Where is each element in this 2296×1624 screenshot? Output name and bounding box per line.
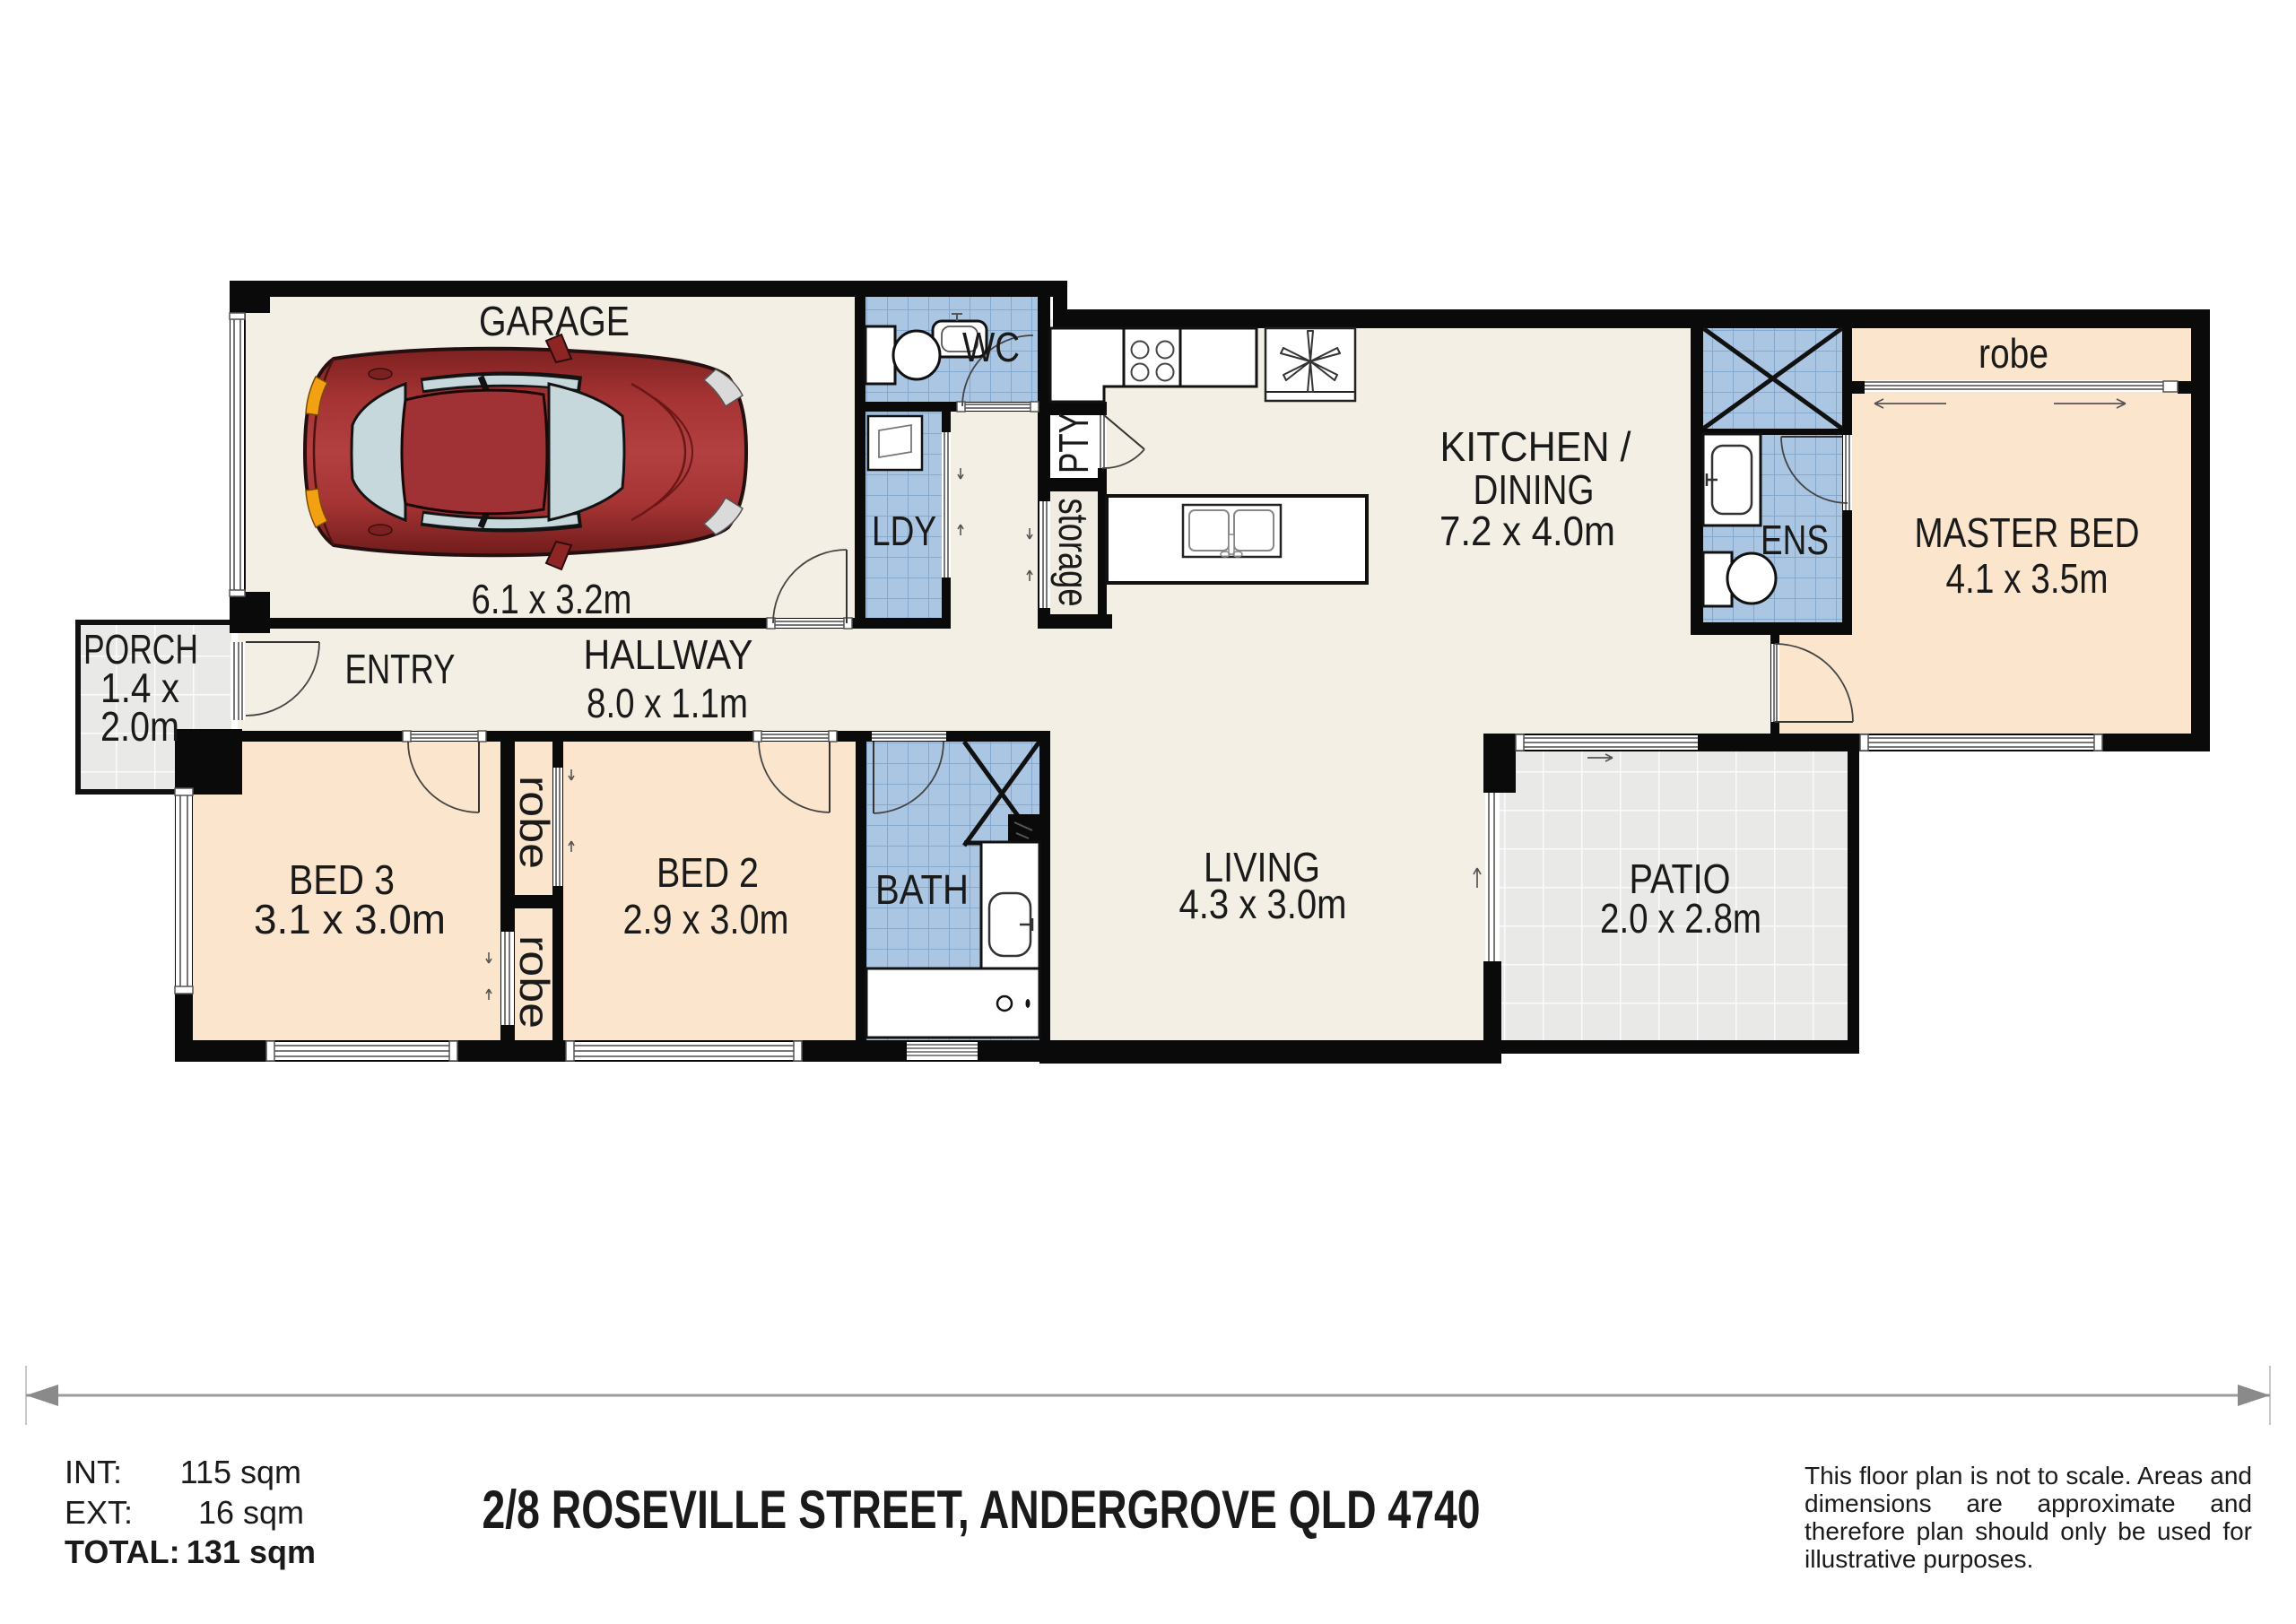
svg-text:2.9 x 3.0m: 2.9 x 3.0m xyxy=(623,896,789,942)
svg-text:INT:: INT: xyxy=(65,1454,122,1490)
svg-text:LDY: LDY xyxy=(872,508,936,554)
svg-text:DINING: DINING xyxy=(1474,466,1595,513)
svg-text:BED 2: BED 2 xyxy=(657,849,759,896)
svg-text:ENTRY: ENTRY xyxy=(345,646,456,692)
svg-text:storage: storage xyxy=(1050,499,1097,607)
svg-text:ENS: ENS xyxy=(1761,517,1829,563)
svg-text:MASTER BED: MASTER BED xyxy=(1915,509,2140,556)
svg-text:KITCHEN /: KITCHEN / xyxy=(1440,423,1631,470)
svg-text:8.0 x 1.1m: 8.0 x 1.1m xyxy=(587,680,748,726)
svg-text:EXT:: EXT: xyxy=(65,1494,133,1531)
svg-text:2/8 ROSEVILLE STREET, ANDERGRO: 2/8 ROSEVILLE STREET, ANDERGROVE QLD 474… xyxy=(483,1480,1481,1540)
svg-text:4.1 x 3.5m: 4.1 x 3.5m xyxy=(1946,555,2109,602)
svg-text:GARAGE: GARAGE xyxy=(479,298,630,344)
svg-text:WC: WC xyxy=(962,324,1020,370)
svg-text:6.1 x 3.2m: 6.1 x 3.2m xyxy=(472,576,632,622)
svg-text:HALLWAY: HALLWAY xyxy=(584,631,753,678)
svg-text:131 sqm: 131 sqm xyxy=(187,1533,316,1570)
svg-text:7.2 x 4.0m: 7.2 x 4.0m xyxy=(1439,508,1615,554)
svg-text:4.3 x 3.0m: 4.3 x 3.0m xyxy=(1179,881,1347,927)
svg-text:PTY: PTY xyxy=(1050,413,1097,473)
svg-text:robe: robe xyxy=(511,935,558,1029)
svg-text:BATH: BATH xyxy=(875,866,969,913)
svg-text:TOTAL:: TOTAL: xyxy=(65,1533,180,1570)
svg-text:2.0 x 2.8m: 2.0 x 2.8m xyxy=(1600,895,1761,942)
svg-text:3.1 x 3.0m: 3.1 x 3.0m xyxy=(254,896,446,942)
svg-text:2.0m: 2.0m xyxy=(100,703,179,750)
svg-text:robe: robe xyxy=(511,776,558,869)
svg-text:115 sqm: 115 sqm xyxy=(180,1454,301,1490)
svg-text:robe: robe xyxy=(1979,330,2048,377)
svg-text:16 sqm: 16 sqm xyxy=(198,1494,304,1531)
